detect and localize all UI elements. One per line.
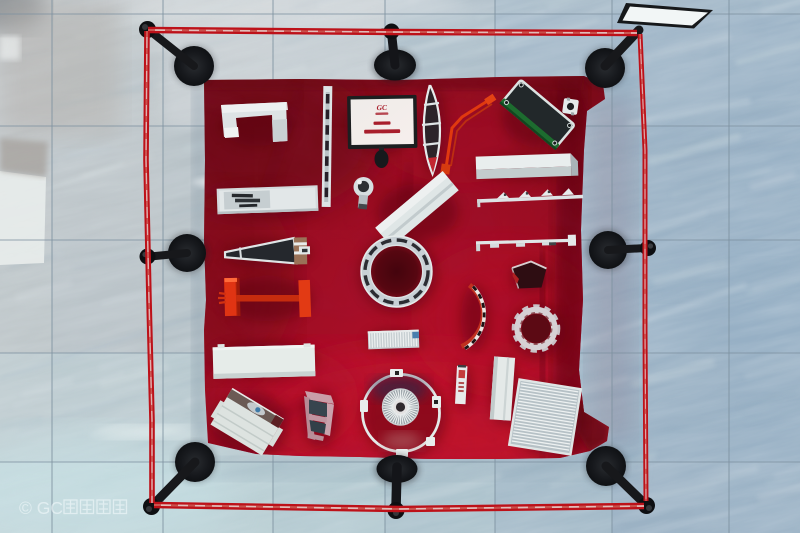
- svg-text:© GC: © GC: [19, 498, 63, 518]
- svg-text:GC: GC: [376, 103, 388, 112]
